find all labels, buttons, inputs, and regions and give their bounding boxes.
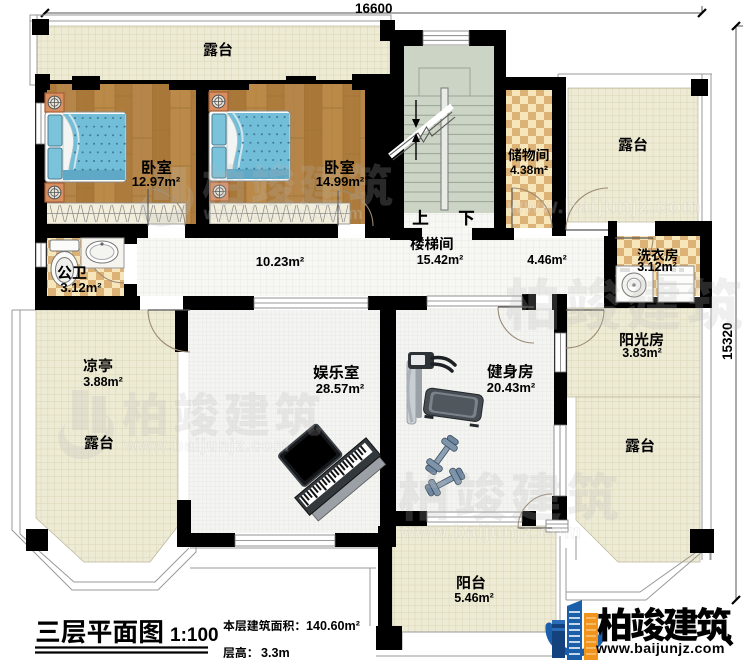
svg-text:140.60m²: 140.60m² bbox=[306, 619, 360, 633]
svg-text:www.baijunjz.com: www.baijunjz.com bbox=[203, 204, 364, 223]
svg-text:1:100: 1:100 bbox=[170, 625, 219, 646]
svg-text:www.baijunjz.com: www.baijunjz.com bbox=[399, 522, 582, 543]
svg-text:3.83m²: 3.83m² bbox=[622, 346, 662, 360]
svg-text:5.46m²: 5.46m² bbox=[454, 591, 494, 605]
svg-text:14.99m²: 14.99m² bbox=[316, 174, 365, 189]
svg-text:12.97m²: 12.97m² bbox=[132, 174, 181, 189]
svg-text:www.baijunjz.com: www.baijunjz.com bbox=[123, 435, 290, 455]
svg-text:28.57m²: 28.57m² bbox=[316, 381, 365, 396]
svg-text:www.baijunjz.com: www.baijunjz.com bbox=[595, 641, 725, 657]
svg-text:www.baijunjz.com: www.baijunjz.com bbox=[506, 195, 702, 218]
svg-text:4.38m²: 4.38m² bbox=[510, 163, 548, 177]
svg-text:16600: 16600 bbox=[355, 1, 393, 16]
svg-text:3.12m²: 3.12m² bbox=[637, 260, 677, 274]
svg-text:20.43m²: 20.43m² bbox=[487, 380, 536, 395]
svg-text:3.3m: 3.3m bbox=[261, 646, 290, 660]
svg-text:3.88m²: 3.88m² bbox=[83, 375, 123, 389]
svg-text:3.12m²: 3.12m² bbox=[60, 280, 102, 295]
svg-text:15.42m²: 15.42m² bbox=[417, 253, 464, 267]
svg-text:10.23m²: 10.23m² bbox=[256, 254, 305, 269]
svg-text:4.46m²: 4.46m² bbox=[527, 253, 567, 267]
